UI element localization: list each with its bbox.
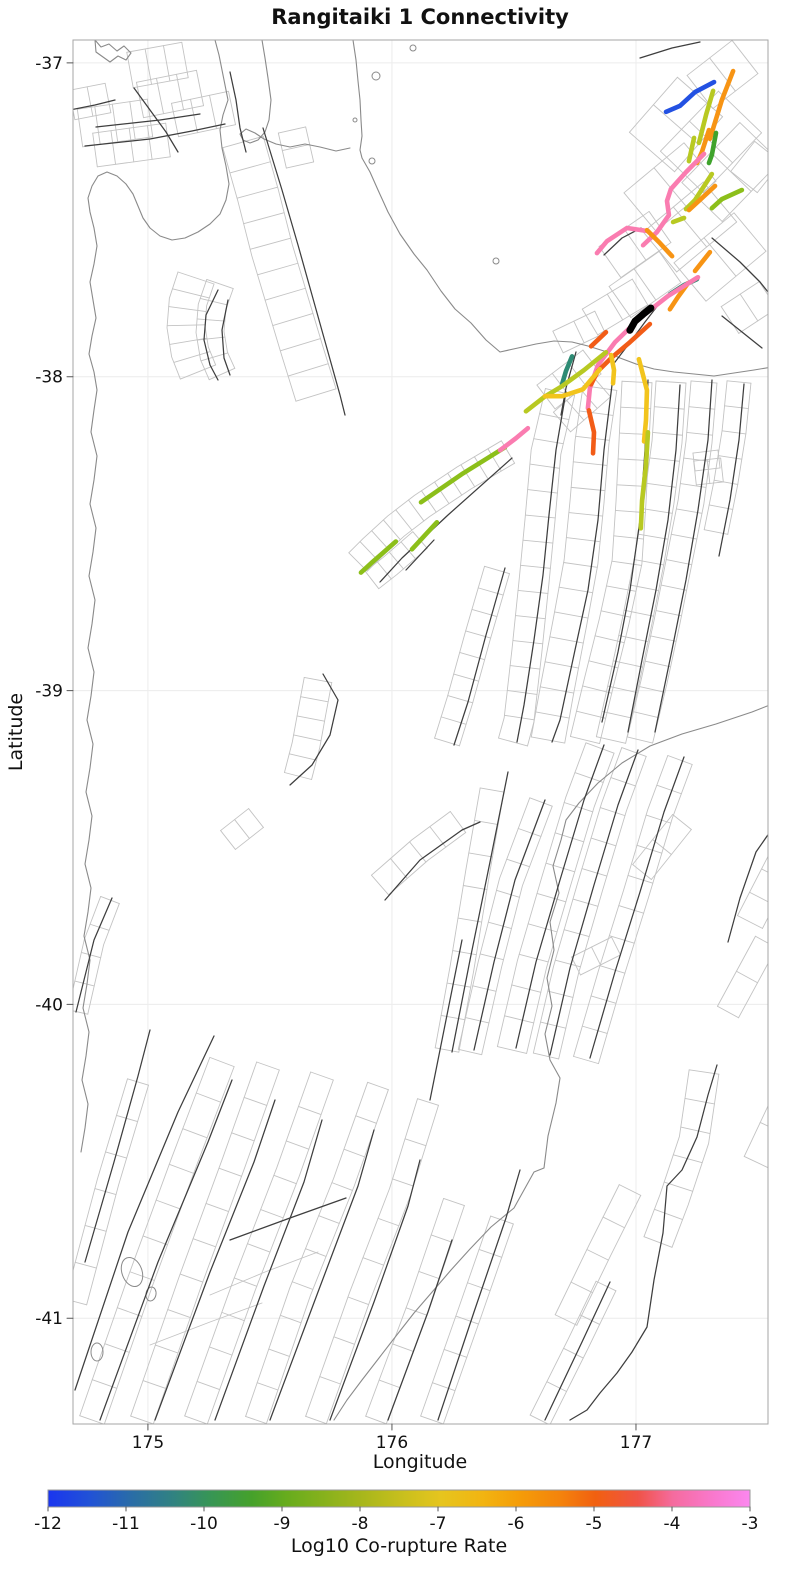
fault-trace: [640, 42, 700, 58]
map-layer: [65, 40, 799, 1425]
colorbar-tick-label: -7: [430, 1514, 447, 1534]
fault-ribbon: [570, 381, 652, 743]
coastline: [334, 697, 790, 1420]
fault-ribbon: [223, 136, 336, 401]
fault-ribbon: [497, 743, 614, 1054]
fault-ribbon: [131, 1062, 280, 1424]
fault-trace: [85, 124, 225, 146]
fault-ribbon: [674, 213, 766, 301]
fault-trace: [452, 772, 508, 1052]
y-tick-label: -39: [35, 682, 63, 702]
fault-ribbon: [221, 809, 264, 850]
fault-trace: [85, 1030, 150, 1262]
fault-trace: [155, 1100, 275, 1420]
fault-ribbon: [210, 1252, 318, 1295]
fault-ribbon: [744, 1088, 800, 1167]
coastline: [81, 40, 229, 1152]
fault-ribbon: [93, 123, 171, 167]
fault-ribbon: [136, 70, 203, 117]
fault-ribbon: [574, 755, 693, 1063]
co-rupture-segment: [673, 218, 684, 222]
co-rupture-segment: [611, 355, 614, 383]
island-outline: [493, 258, 499, 264]
island-outline: [369, 158, 375, 164]
y-tick-label: -40: [35, 995, 63, 1015]
fault-trace: [550, 750, 638, 1055]
fault-ribbon: [371, 812, 465, 895]
fault-ribbon: [555, 1185, 641, 1326]
fault-trace: [385, 822, 480, 900]
fault-trace: [474, 800, 545, 1050]
x-tick-label: 175: [132, 1433, 164, 1453]
co-rupture-segment: [597, 228, 648, 253]
colorbar: -12-11-10-9-8-7-6-5-4-3: [34, 1490, 758, 1534]
co-rupture-segment: [589, 410, 594, 453]
fault-trace: [722, 316, 762, 348]
lake-outline: [91, 1343, 103, 1361]
colorbar-tick-label: -4: [664, 1514, 681, 1534]
coastline: [240, 40, 350, 151]
fault-trace: [655, 380, 712, 732]
fault-trace: [712, 238, 768, 292]
fault-ribbon: [80, 1057, 234, 1424]
fault-trace: [728, 806, 788, 942]
fault-trace: [430, 940, 462, 1100]
island-outline: [353, 118, 357, 122]
fault-ribbon: [731, 141, 782, 192]
colorbar-tick-label: -6: [508, 1514, 525, 1534]
figure-title: Rangitaiki 1 Connectivity: [271, 5, 569, 29]
fault-ribbon: [69, 83, 111, 119]
coastline: [95, 40, 131, 62]
fault-ribbon: [65, 1079, 148, 1305]
fault-trace: [545, 1282, 610, 1420]
fault-ribbon: [627, 381, 717, 743]
colorbar-bar: [48, 1490, 750, 1507]
co-rupture-segment: [689, 138, 694, 161]
island-outline: [410, 45, 416, 51]
fault-ribbon: [167, 272, 216, 379]
co-rupture-segment: [639, 359, 647, 441]
x-axis-label: Longitude: [373, 1451, 468, 1473]
x-tick-label: 176: [376, 1433, 408, 1453]
fault-trace: [454, 568, 505, 745]
fault-trace: [570, 1065, 717, 1420]
fault-ribbon: [582, 279, 647, 335]
colorbar-tick-label: -9: [274, 1514, 291, 1534]
co-rupture-segment: [361, 542, 396, 573]
fault-ribbon: [349, 441, 515, 571]
fault-ribbon: [185, 1072, 334, 1424]
colorbar-tick-label: -10: [190, 1514, 218, 1534]
co-rupture-segment: [500, 428, 528, 450]
y-axis-label: Latitude: [5, 693, 27, 771]
fault-trace: [438, 1170, 520, 1420]
colorbar-tick-label: -3: [742, 1514, 759, 1534]
x-tick-label: 177: [620, 1433, 652, 1453]
fault-ribbon: [306, 1099, 439, 1424]
figure: Rangitaiki 1 Connectivity 175176177-37-3…: [0, 0, 800, 1573]
fault-trace: [215, 1120, 322, 1420]
y-tick-label: -41: [35, 1309, 63, 1329]
fault-ribbon: [68, 896, 119, 1014]
colorbar-label: Log10 Co-rupture Rate: [291, 1535, 507, 1557]
fault-ribbon: [246, 1082, 389, 1423]
fault-trace: [602, 380, 648, 722]
fault-trace: [263, 128, 345, 415]
fault-trace: [406, 540, 434, 570]
fault-ribbon: [530, 1281, 616, 1425]
fault-trace: [75, 1036, 214, 1390]
fault-ribbon: [643, 182, 736, 272]
fault-ribbon: [127, 42, 188, 87]
y-tick-label: -37: [35, 54, 63, 74]
map-plot: Rangitaiki 1 Connectivity 175176177-37-3…: [0, 0, 800, 1573]
fault-ribbon: [553, 311, 605, 353]
fault-ribbon: [284, 677, 331, 779]
fault-trace: [590, 757, 684, 1058]
colorbar-tick-label: -12: [34, 1514, 62, 1534]
island-outline: [372, 72, 380, 80]
fault-ribbon: [278, 127, 313, 168]
fault-ribbon: [421, 1216, 514, 1424]
y-tick-label: -38: [35, 368, 63, 388]
lake-outline: [117, 1254, 146, 1289]
colorbar-tick-label: -11: [112, 1514, 140, 1534]
colorbar-tick-label: -8: [352, 1514, 369, 1534]
fault-ribbon: [435, 788, 504, 1052]
colorbar-tick-label: -5: [586, 1514, 603, 1534]
